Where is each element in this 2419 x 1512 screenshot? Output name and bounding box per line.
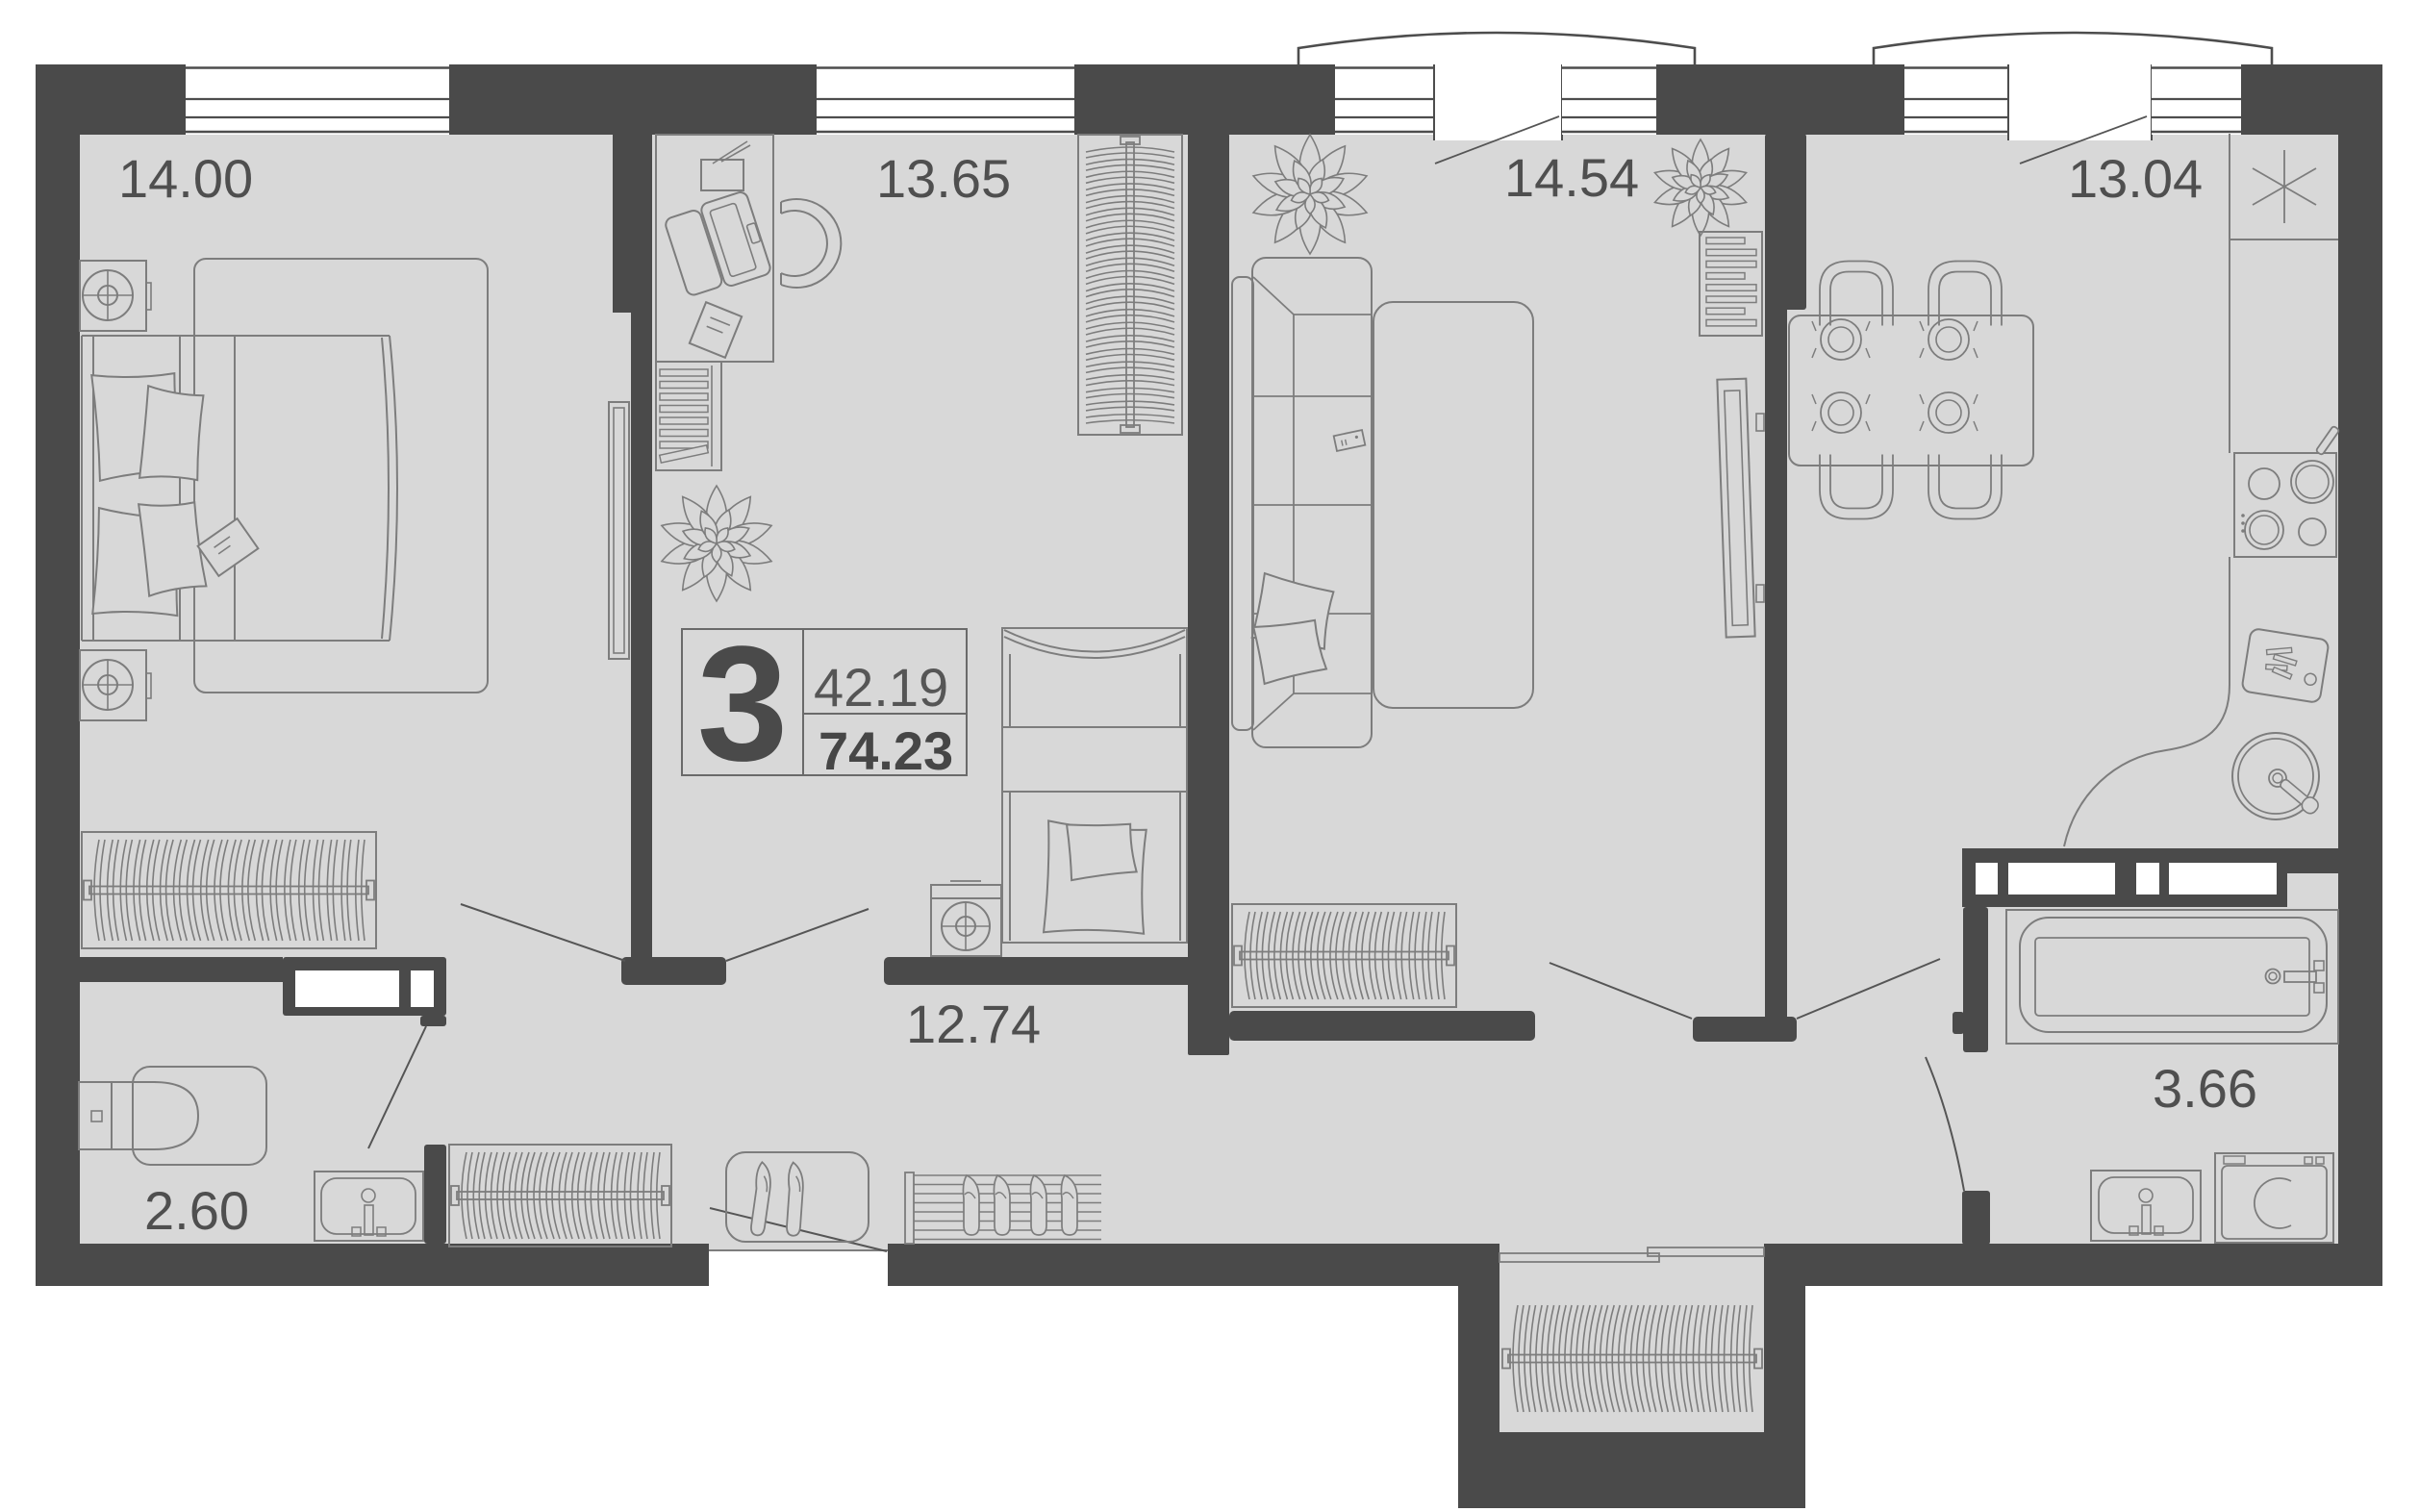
svg-text:3: 3 bbox=[697, 613, 789, 795]
svg-text:3.66: 3.66 bbox=[2153, 1058, 2257, 1119]
svg-text:12.74: 12.74 bbox=[906, 994, 1041, 1054]
svg-text:42.19: 42.19 bbox=[814, 657, 948, 718]
svg-text:14.54: 14.54 bbox=[1504, 147, 1639, 208]
svg-text:74.23: 74.23 bbox=[819, 720, 953, 781]
svg-text:2.60: 2.60 bbox=[144, 1180, 249, 1241]
svg-text:14.00: 14.00 bbox=[118, 148, 253, 209]
svg-text:13.65: 13.65 bbox=[876, 148, 1011, 209]
svg-text:13.04: 13.04 bbox=[2068, 148, 2203, 209]
